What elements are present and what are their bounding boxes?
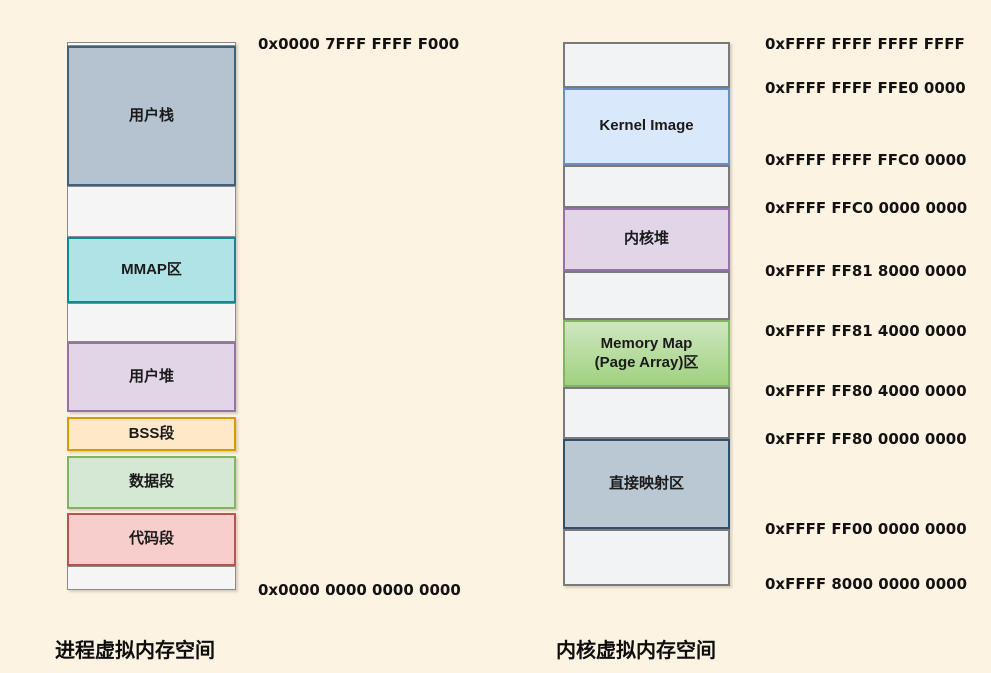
kernel-virtual-memory-address-6: 0xFFFF FF80 4000 0000 bbox=[765, 382, 967, 400]
kernel-virtual-memory-address-9: 0xFFFF 8000 0000 0000 bbox=[765, 575, 967, 593]
segment-free-5 bbox=[563, 271, 730, 320]
segment-direct-mapping-label: 直接映射区 bbox=[609, 475, 684, 494]
segment-code: 代码段 bbox=[67, 513, 236, 566]
segment-bss-label: BSS段 bbox=[129, 425, 175, 444]
memory-layout-diagram: 进程虚拟内存空间 内核虚拟内存空间 用户栈MMAP区用户堆BSS段数据段代码段0… bbox=[0, 0, 991, 673]
kernel-virtual-memory-address-3: 0xFFFF FFC0 0000 0000 bbox=[765, 199, 967, 217]
kernel-virtual-memory-address-4: 0xFFFF FF81 8000 0000 bbox=[765, 262, 967, 280]
segment-data: 数据段 bbox=[67, 456, 236, 509]
segment-kernel-image-label: Kernel Image bbox=[599, 117, 693, 136]
segment-free-1 bbox=[67, 186, 236, 237]
segment-code-label: 代码段 bbox=[129, 530, 174, 549]
segment-user-heap: 用户堆 bbox=[67, 342, 236, 412]
segment-free-7 bbox=[563, 529, 730, 586]
segment-free-4 bbox=[563, 165, 730, 208]
segment-mmap-label: MMAP区 bbox=[121, 261, 182, 280]
kernel-virtual-memory-address-0: 0xFFFF FFFF FFFF FFFF bbox=[765, 35, 965, 53]
process-memory-caption: 进程虚拟内存空间 bbox=[55, 634, 215, 663]
segment-kernel-heap: 内核堆 bbox=[563, 208, 730, 271]
segment-free-2 bbox=[67, 303, 236, 342]
segment-user-stack-label: 用户栈 bbox=[129, 107, 174, 126]
kernel-virtual-memory-address-5: 0xFFFF FF81 4000 0000 bbox=[765, 322, 967, 340]
kernel-virtual-memory-address-2: 0xFFFF FFFF FFC0 0000 bbox=[765, 151, 966, 169]
kernel-virtual-memory-address-8: 0xFFFF FF00 0000 0000 bbox=[765, 520, 967, 538]
segment-memory-map-label: Memory Map (Page Array)区 bbox=[595, 335, 699, 373]
segment-user-stack: 用户栈 bbox=[67, 46, 236, 186]
segment-direct-mapping: 直接映射区 bbox=[563, 439, 730, 529]
segment-data-label: 数据段 bbox=[129, 473, 174, 492]
segment-bss: BSS段 bbox=[67, 417, 236, 451]
segment-user-heap-label: 用户堆 bbox=[129, 368, 174, 387]
segment-memory-map: Memory Map (Page Array)区 bbox=[563, 320, 730, 387]
segment-mmap: MMAP区 bbox=[67, 237, 236, 303]
segment-kernel-heap-label: 内核堆 bbox=[624, 230, 669, 249]
kernel-memory-caption: 内核虚拟内存空间 bbox=[556, 634, 716, 663]
segment-kernel-image: Kernel Image bbox=[563, 88, 730, 165]
process-virtual-memory-address-0: 0x0000 7FFF FFFF F000 bbox=[258, 35, 459, 53]
segment-free-3 bbox=[67, 566, 236, 590]
segment-free-top bbox=[563, 42, 730, 88]
kernel-virtual-memory-address-7: 0xFFFF FF80 0000 0000 bbox=[765, 430, 967, 448]
segment-free-6 bbox=[563, 387, 730, 439]
kernel-virtual-memory-address-1: 0xFFFF FFFF FFE0 0000 bbox=[765, 79, 966, 97]
process-virtual-memory-address-1: 0x0000 0000 0000 0000 bbox=[258, 581, 461, 599]
